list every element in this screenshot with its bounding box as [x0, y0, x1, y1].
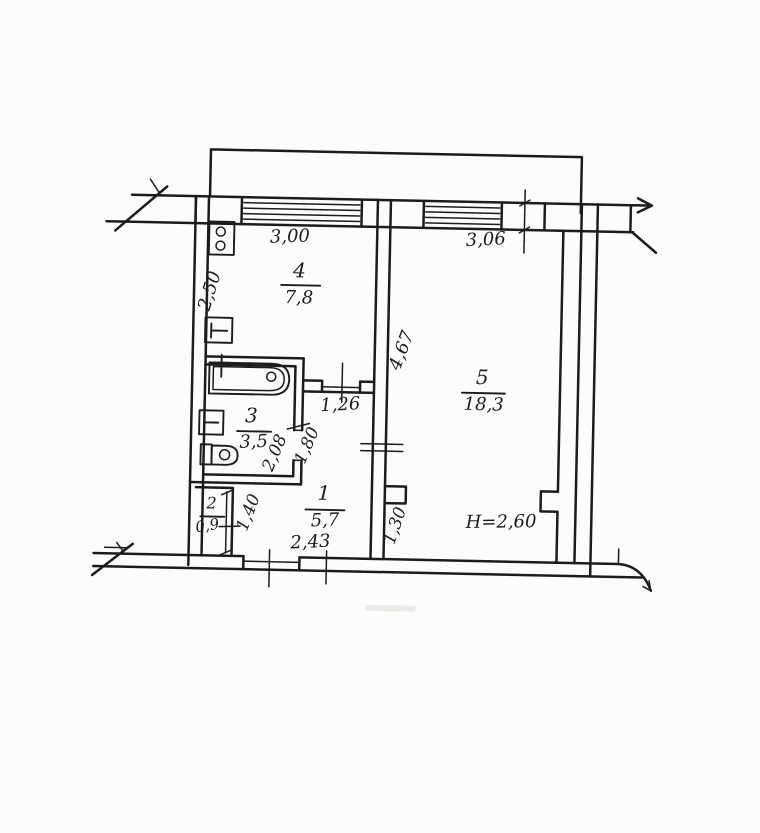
dim-hall-width: 2,43 — [289, 531, 331, 554]
room3-number: 3 — [245, 403, 258, 427]
room5-number: 5 — [476, 365, 489, 389]
window-room5 — [426, 206, 500, 224]
scanned-floor-plan-page: 4 7,8 5 18,3 3 3,5 1 5,7 2 — [0, 0, 760, 833]
dim-hall-depth: 1,40 — [233, 491, 265, 534]
room3-area: 3,5 — [239, 431, 268, 453]
ceiling-height-note: H=2,60 — [464, 511, 536, 533]
wall-break-mark-bottom-left — [92, 542, 133, 576]
right-wall — [539, 203, 598, 576]
room1-area: 5,7 — [310, 509, 340, 531]
floor-plan-drawing: 4 7,8 5 18,3 3 3,5 1 5,7 2 — [0, 0, 760, 833]
stove-icon — [209, 221, 235, 255]
dim-corridor-width: 1,26 — [320, 393, 361, 416]
scan-smudge — [365, 605, 415, 612]
room5-area: 18,3 — [463, 394, 504, 416]
niche-right-wall — [540, 491, 557, 511]
window-dimension-line — [519, 190, 530, 253]
dim-window-room4: 3,00 — [270, 225, 311, 247]
room1-label: 1 5,7 — [305, 480, 345, 532]
wall-break-mark-bottom-right — [618, 549, 652, 591]
top-exterior-wall — [106, 178, 657, 253]
room4-label: 4 7,8 — [281, 258, 321, 309]
bathtub-icon — [209, 354, 290, 395]
kitchen-sink-icon — [205, 317, 233, 343]
room5-label: 5 18,3 — [462, 365, 506, 416]
dim-room5-wall-upper: 4,67 — [384, 328, 419, 374]
room1-number: 1 — [317, 481, 330, 505]
niche-left-wall — [385, 486, 406, 503]
door-mark-hall-room5 — [361, 444, 403, 452]
room4-number: 4 — [292, 258, 306, 282]
room2-label: 2 0,9 — [194, 493, 225, 537]
dim-room4-depth: 2,50 — [193, 269, 225, 314]
washbasin-icon — [199, 410, 223, 434]
window-room4 — [244, 203, 360, 222]
room2-area: 0,9 — [194, 515, 221, 537]
room4-area: 7,8 — [284, 287, 313, 309]
room2-number: 2 — [205, 493, 217, 512]
dim-window-room5: 3,06 — [465, 228, 506, 251]
toilet-icon — [200, 444, 237, 465]
